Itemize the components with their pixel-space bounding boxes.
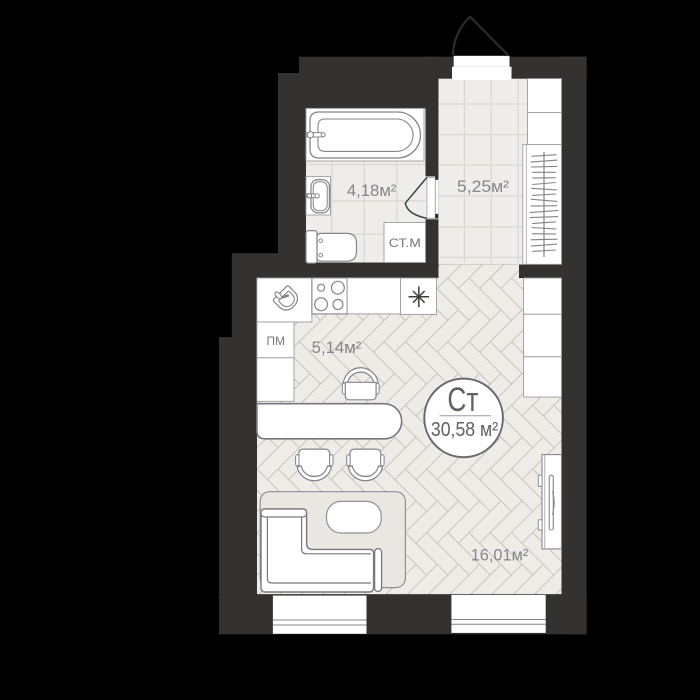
svg-text:5,25м²: 5,25м² bbox=[457, 177, 509, 196]
svg-text:ПМ: ПМ bbox=[267, 334, 286, 348]
svg-text:5,14м²: 5,14м² bbox=[312, 338, 362, 357]
svg-text:СТ.М: СТ.М bbox=[389, 236, 421, 250]
svg-text:4,18м²: 4,18м² bbox=[347, 181, 397, 200]
svg-text:Ст: Ст bbox=[447, 381, 478, 419]
svg-text:16,01м²: 16,01м² bbox=[471, 546, 529, 565]
svg-text:30,58 м²: 30,58 м² bbox=[431, 419, 499, 441]
